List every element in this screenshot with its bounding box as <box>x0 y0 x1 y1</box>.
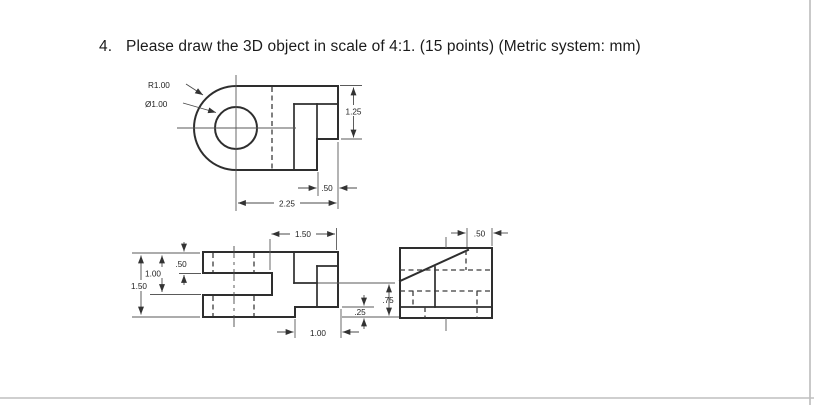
radius-leader-line <box>186 84 203 95</box>
dim-label-front-height-1-50: 1.50 <box>131 282 147 291</box>
side-view: .50 <box>400 228 508 331</box>
dim-label-front-width-1-50: 1.50 <box>295 230 311 239</box>
dim-label-front-25: .25 <box>354 308 366 317</box>
dim-label-front-75: .75 <box>382 296 394 305</box>
dim-label-1-25: 1.25 <box>346 108 362 117</box>
scan-page: 4.Please draw the 3D object in scale of … <box>0 0 814 405</box>
engineering-drawing: R1.00 Ø1.00 1.25 .50 2.25 <box>0 0 814 405</box>
diameter-leader-line <box>183 103 216 113</box>
dim-label-side-50: .50 <box>474 230 486 239</box>
dim-label-diameter: Ø1.00 <box>145 100 168 109</box>
top-view: R1.00 Ø1.00 1.25 .50 2.25 <box>145 75 363 211</box>
dim-label-radius: R1.00 <box>148 81 170 90</box>
dim-label-notch-50: .50 <box>321 184 333 193</box>
dim-label-2-25: 2.25 <box>279 200 295 209</box>
dim-label-front-1-00-bottom: 1.00 <box>310 329 326 338</box>
side-incline-edge <box>400 250 468 281</box>
dim-label-front-50-top: .50 <box>175 260 187 269</box>
dim-label-front-1-00-left: 1.00 <box>145 270 161 279</box>
front-view: 1.50 1.50 1.00 .50 1.00 <box>126 228 400 338</box>
